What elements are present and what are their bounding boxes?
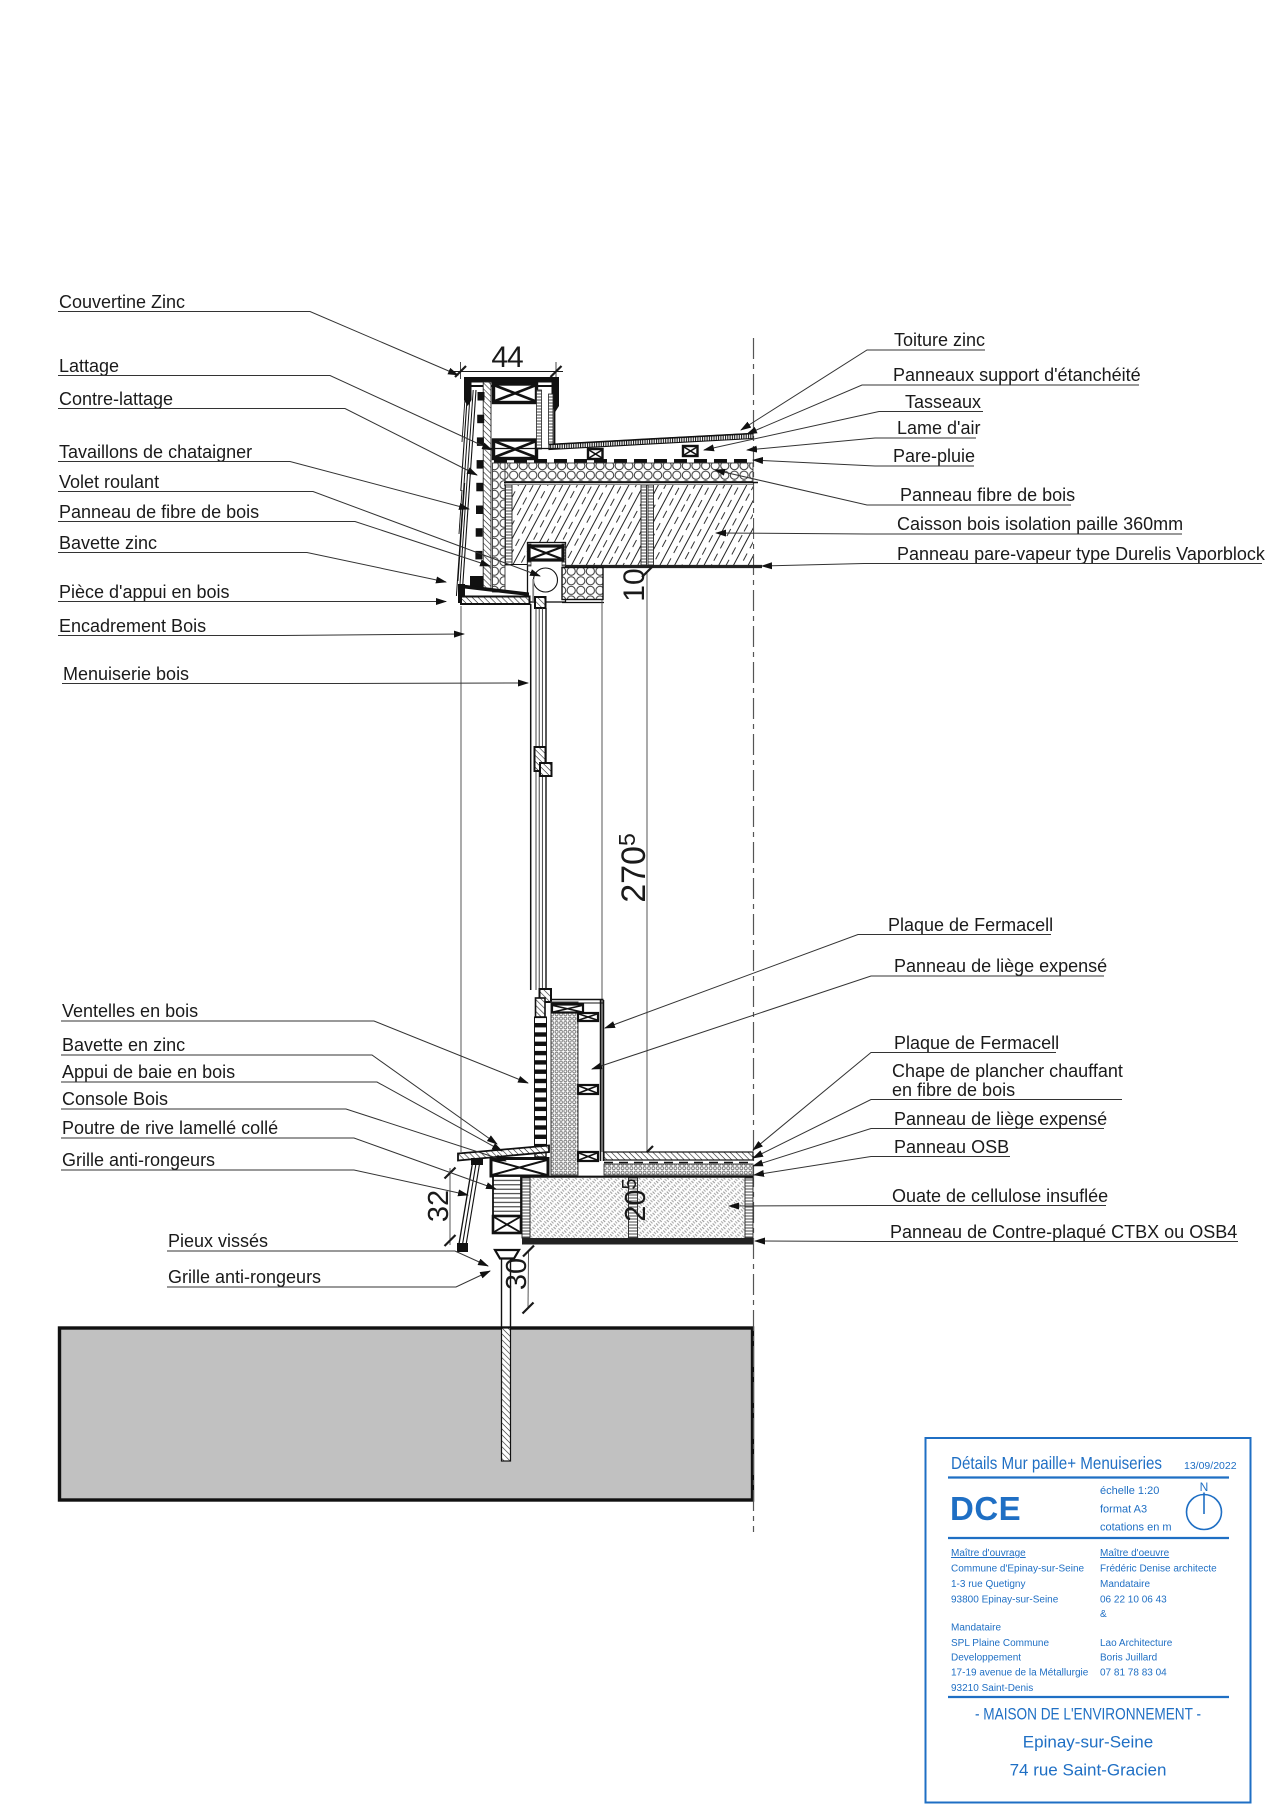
svg-text:Bavette zinc: Bavette zinc: [59, 533, 157, 553]
svg-text:Chape de plancher chauffant: Chape de plancher chauffant: [892, 1061, 1123, 1081]
svg-text:1-3 rue Quetigny: 1-3 rue Quetigny: [951, 1579, 1026, 1590]
svg-text:Console Bois: Console Bois: [62, 1089, 168, 1109]
svg-text:Commune d'Epinay-sur-Seine: Commune d'Epinay-sur-Seine: [951, 1564, 1085, 1575]
svg-text:Grille anti-rongeurs: Grille anti-rongeurs: [168, 1267, 321, 1287]
svg-text:Maître d'ouvrage: Maître d'ouvrage: [951, 1548, 1026, 1559]
svg-text:Volet roulant: Volet roulant: [59, 472, 159, 492]
svg-text:Caisson bois isolation paille: Caisson bois isolation paille 360mm: [897, 514, 1183, 534]
svg-text:Pièce d'appui en bois: Pièce d'appui en bois: [59, 582, 230, 602]
svg-text:format A3: format A3: [1100, 1504, 1147, 1516]
svg-text:74 rue Saint-Gracien: 74 rue Saint-Gracien: [1010, 1761, 1167, 1780]
svg-text:Tavaillons de chataigner: Tavaillons de chataigner: [59, 442, 252, 462]
svg-text:Panneau OSB: Panneau OSB: [894, 1137, 1009, 1157]
svg-text:30: 30: [501, 1258, 533, 1290]
svg-text:SPL Plaine Commune: SPL Plaine Commune: [951, 1638, 1049, 1649]
svg-text:&: &: [1100, 1609, 1107, 1620]
svg-text:- MAISON DE L'ENVIRONNEMENT -: - MAISON DE L'ENVIRONNEMENT -: [975, 1705, 1201, 1724]
svg-text:Boris Juillard: Boris Juillard: [1100, 1653, 1157, 1664]
svg-text:Panneau fibre de bois: Panneau fibre de bois: [900, 485, 1075, 505]
svg-text:Frédéric Denise architecte: Frédéric Denise architecte: [1100, 1564, 1217, 1575]
svg-text:Tasseaux: Tasseaux: [905, 392, 981, 412]
svg-text:Panneau pare-vapeur type Durel: Panneau pare-vapeur type Durelis Vaporbl…: [897, 544, 1266, 564]
svg-text:32: 32: [423, 1190, 455, 1222]
svg-text:cotations en m: cotations en m: [1100, 1522, 1172, 1534]
svg-text:Couvertine Zinc: Couvertine Zinc: [59, 292, 185, 312]
svg-text:Maître d'oeuvre: Maître d'oeuvre: [1100, 1548, 1170, 1559]
svg-text:Plaque de Fermacell: Plaque de Fermacell: [894, 1033, 1059, 1053]
svg-text:Panneaux support d'étanchéité: Panneaux support d'étanchéité: [893, 365, 1141, 385]
svg-text:Epinay-sur-Seine: Epinay-sur-Seine: [1023, 1733, 1153, 1752]
svg-text:Bavette en zinc: Bavette en zinc: [62, 1035, 185, 1055]
svg-text:Ouate de cellulose insuflée: Ouate de cellulose insuflée: [892, 1186, 1108, 1206]
svg-text:Developpement: Developpement: [951, 1653, 1021, 1664]
svg-text:Mandataire: Mandataire: [951, 1623, 1001, 1634]
svg-text:en fibre de bois: en fibre de bois: [892, 1080, 1015, 1100]
svg-text:Contre-lattage: Contre-lattage: [59, 389, 173, 409]
svg-text:10: 10: [618, 568, 651, 601]
svg-text:Pieux vissés: Pieux vissés: [168, 1231, 268, 1251]
svg-text:17-19 avenue de la Métallurgie: 17-19 avenue de la Métallurgie: [951, 1668, 1089, 1679]
svg-text:Appui de baie en bois: Appui de baie en bois: [62, 1062, 235, 1082]
svg-text:Panneau de liège expensé: Panneau de liège expensé: [894, 956, 1107, 976]
svg-text:Ventelles en bois: Ventelles en bois: [62, 1001, 198, 1021]
svg-text:Encadrement Bois: Encadrement Bois: [59, 616, 206, 636]
svg-text:13/09/2022: 13/09/2022: [1184, 1460, 1237, 1472]
svg-text:Panneau de Contre-plaqué CTBX: Panneau de Contre-plaqué CTBX ou OSB4: [890, 1222, 1237, 1242]
svg-text:Pare-pluie: Pare-pluie: [893, 446, 975, 466]
svg-text:Panneau de liège expensé: Panneau de liège expensé: [894, 1109, 1107, 1129]
svg-text:93800 Epinay-sur-Seine: 93800 Epinay-sur-Seine: [951, 1595, 1059, 1606]
svg-text:Mandataire: Mandataire: [1100, 1579, 1150, 1590]
svg-text:Détails Mur paille+ Menuiserie: Détails Mur paille+ Menuiseries: [951, 1453, 1162, 1473]
svg-text:N: N: [1200, 1480, 1209, 1494]
svg-text:échelle 1:20: échelle 1:20: [1100, 1485, 1159, 1497]
svg-text:Menuiserie bois: Menuiserie bois: [63, 664, 189, 684]
svg-text:Poutre de rive lamellé collé: Poutre de rive lamellé collé: [62, 1118, 278, 1138]
svg-text:Plaque de Fermacell: Plaque de Fermacell: [888, 915, 1053, 935]
svg-text:Toiture zinc: Toiture zinc: [894, 330, 985, 350]
svg-text:Grille anti-rongeurs: Grille anti-rongeurs: [62, 1150, 215, 1170]
svg-text:DCE: DCE: [950, 1490, 1021, 1527]
svg-text:Panneau de fibre de bois: Panneau de fibre de bois: [59, 502, 259, 522]
svg-text:93210 Saint-Denis: 93210 Saint-Denis: [951, 1683, 1033, 1694]
svg-text:Lao Architecture: Lao Architecture: [1100, 1638, 1173, 1649]
svg-text:Lattage: Lattage: [59, 356, 119, 376]
svg-text:Lame d'air: Lame d'air: [897, 418, 980, 438]
svg-text:07 81 78 83 04: 07 81 78 83 04: [1100, 1668, 1167, 1679]
svg-text:44: 44: [491, 341, 523, 374]
svg-text:06 22 10 06 43: 06 22 10 06 43: [1100, 1595, 1167, 1606]
